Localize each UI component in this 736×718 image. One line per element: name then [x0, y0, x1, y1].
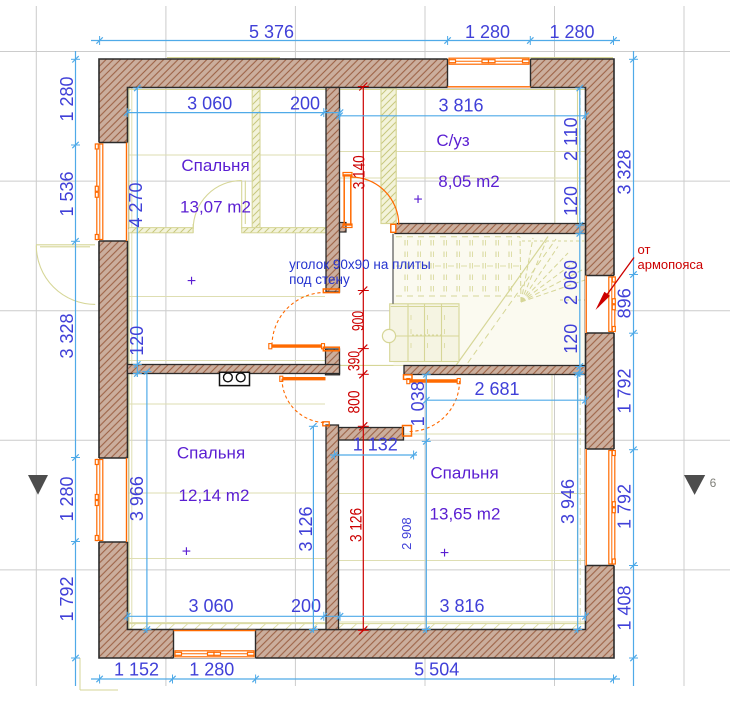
svg-text:3 328: 3 328	[615, 149, 635, 194]
svg-text:3 060: 3 060	[188, 596, 233, 616]
svg-text:390: 390	[346, 351, 364, 371]
svg-text:13,07 m2: 13,07 m2	[180, 198, 251, 217]
svg-text:+: +	[413, 192, 422, 209]
svg-text:1 280: 1 280	[57, 76, 77, 121]
svg-text:6: 6	[710, 476, 717, 490]
svg-text:1 038: 1 038	[408, 381, 428, 426]
svg-text:уголок 90x90 на плиты: уголок 90x90 на плиты	[289, 257, 431, 272]
svg-text:3 816: 3 816	[439, 596, 484, 616]
svg-text:8,05 m2: 8,05 m2	[438, 172, 499, 191]
svg-text:3 140: 3 140	[351, 155, 369, 189]
svg-text:+: +	[182, 544, 191, 561]
svg-text:3 816: 3 816	[438, 95, 483, 115]
svg-text:1 152: 1 152	[114, 660, 159, 680]
svg-text:2 908: 2 908	[399, 517, 414, 550]
svg-text:от: от	[638, 242, 651, 257]
svg-text:Спальня: Спальня	[181, 156, 249, 175]
svg-text:120: 120	[561, 324, 581, 354]
svg-text:896: 896	[615, 288, 635, 318]
svg-text:1 280: 1 280	[465, 22, 510, 42]
svg-text:+: +	[187, 273, 196, 290]
svg-text:12,14 m2: 12,14 m2	[179, 486, 250, 505]
svg-text:120: 120	[127, 326, 147, 356]
svg-text:1 792: 1 792	[615, 368, 635, 413]
svg-text:Спальня: Спальня	[430, 464, 498, 483]
svg-text:120: 120	[561, 186, 581, 216]
svg-text:3 966: 3 966	[127, 476, 147, 521]
svg-text:2 681: 2 681	[474, 379, 519, 399]
svg-text:1 536: 1 536	[57, 171, 77, 216]
svg-text:1 408: 1 408	[615, 585, 635, 630]
svg-text:5 376: 5 376	[249, 22, 294, 42]
svg-text:900: 900	[350, 311, 368, 331]
svg-text:3 126: 3 126	[348, 508, 366, 542]
svg-text:1 280: 1 280	[189, 660, 234, 680]
svg-text:1 280: 1 280	[57, 476, 77, 521]
svg-text:1 792: 1 792	[615, 484, 635, 529]
svg-text:13,65 m2: 13,65 m2	[430, 505, 501, 524]
svg-text:4 270: 4 270	[126, 182, 146, 227]
svg-text:2 110: 2 110	[561, 117, 581, 161]
svg-text:С/уз: С/уз	[436, 131, 470, 150]
svg-text:Спальня: Спальня	[177, 444, 245, 463]
svg-text:800: 800	[346, 391, 364, 414]
svg-text:1 132: 1 132	[353, 435, 398, 455]
svg-text:200: 200	[290, 94, 320, 114]
svg-text:200: 200	[291, 596, 321, 616]
svg-text:под стену: под стену	[289, 272, 350, 287]
svg-text:2 060: 2 060	[561, 260, 581, 305]
svg-text:3 328: 3 328	[57, 313, 77, 358]
svg-text:1 280: 1 280	[549, 22, 594, 42]
svg-text:+: +	[440, 545, 449, 562]
svg-text:армопояса: армопояса	[638, 257, 704, 272]
svg-text:3 126: 3 126	[296, 506, 316, 551]
svg-text:5 504: 5 504	[414, 660, 459, 680]
svg-text:1 792: 1 792	[57, 576, 77, 621]
svg-text:3 060: 3 060	[187, 94, 232, 114]
svg-text:3 946: 3 946	[558, 479, 578, 524]
